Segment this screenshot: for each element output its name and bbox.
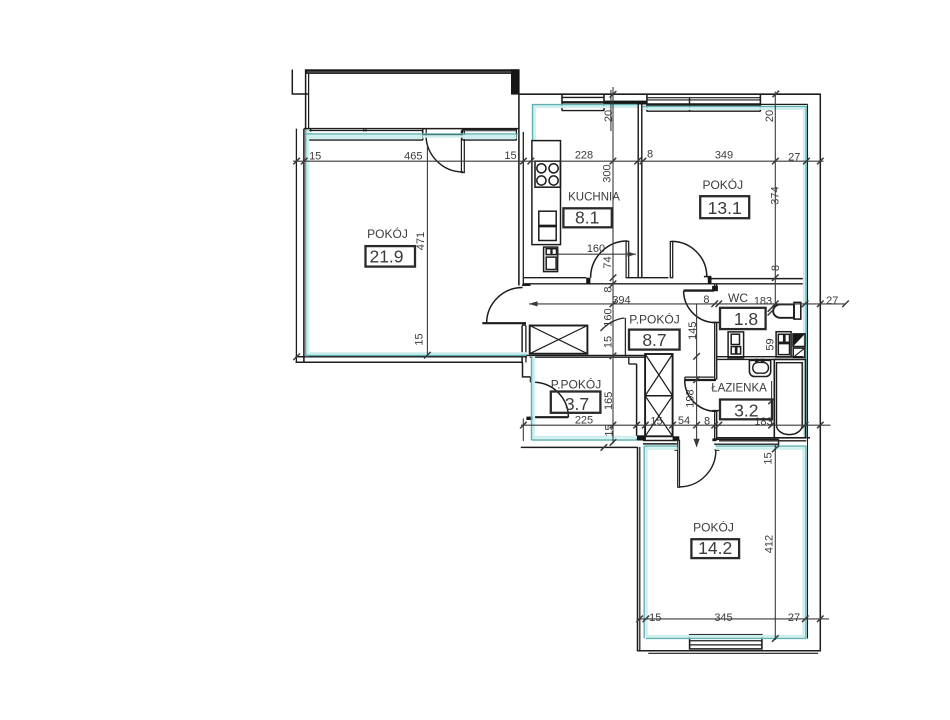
svg-text:3.7: 3.7	[565, 394, 589, 414]
svg-text:20: 20	[603, 110, 615, 122]
svg-text:27: 27	[788, 612, 800, 624]
svg-text:374: 374	[769, 186, 781, 204]
svg-text:15: 15	[649, 612, 661, 624]
svg-text:KUCHNIA: KUCHNIA	[568, 192, 620, 204]
svg-text:14.2: 14.2	[698, 538, 732, 558]
svg-text:P.POKÓJ: P.POKÓJ	[629, 311, 679, 326]
svg-text:54: 54	[678, 415, 690, 427]
svg-text:WC: WC	[728, 291, 748, 305]
svg-text:P.POKÓJ: P.POKÓJ	[551, 376, 601, 391]
svg-text:20: 20	[764, 110, 776, 122]
svg-text:8: 8	[704, 416, 710, 428]
svg-text:15: 15	[413, 333, 425, 345]
svg-text:1.8: 1.8	[734, 309, 758, 329]
svg-text:8: 8	[703, 294, 709, 306]
svg-text:POKÓJ: POKÓJ	[367, 226, 408, 241]
svg-text:145: 145	[687, 322, 699, 340]
svg-text:74: 74	[602, 256, 614, 268]
svg-text:15: 15	[603, 336, 615, 348]
svg-text:198: 198	[685, 389, 697, 407]
svg-text:POKÓJ: POKÓJ	[702, 177, 743, 192]
svg-text:3.2: 3.2	[734, 401, 758, 421]
svg-text:394: 394	[612, 295, 630, 307]
svg-text:27: 27	[826, 295, 838, 307]
svg-text:8: 8	[647, 149, 653, 161]
svg-text:471: 471	[415, 232, 427, 250]
svg-text:465: 465	[404, 151, 422, 163]
svg-text:ŁAZIENKA: ŁAZIENKA	[711, 383, 767, 395]
svg-text:21.9: 21.9	[369, 246, 403, 266]
svg-text:225: 225	[575, 414, 593, 426]
svg-text:8: 8	[770, 265, 782, 271]
svg-text:228: 228	[575, 150, 593, 162]
svg-text:412: 412	[763, 535, 775, 553]
svg-text:8.1: 8.1	[575, 207, 599, 227]
svg-text:15: 15	[309, 151, 321, 163]
svg-text:15: 15	[604, 424, 616, 436]
svg-text:183: 183	[754, 296, 772, 308]
svg-text:8.7: 8.7	[642, 330, 666, 350]
svg-text:27: 27	[788, 151, 800, 163]
svg-text:300: 300	[602, 164, 614, 182]
svg-text:13.1: 13.1	[708, 198, 742, 218]
svg-text:349: 349	[715, 149, 733, 161]
svg-text:59: 59	[764, 338, 776, 350]
svg-text:POKÓJ: POKÓJ	[693, 520, 734, 535]
svg-text:165: 165	[603, 392, 615, 410]
svg-text:8: 8	[602, 286, 614, 292]
svg-text:160: 160	[587, 243, 605, 255]
svg-text:345: 345	[714, 612, 732, 624]
svg-text:15: 15	[763, 452, 775, 464]
svg-text:15: 15	[650, 415, 662, 427]
svg-text:15: 15	[504, 150, 516, 162]
